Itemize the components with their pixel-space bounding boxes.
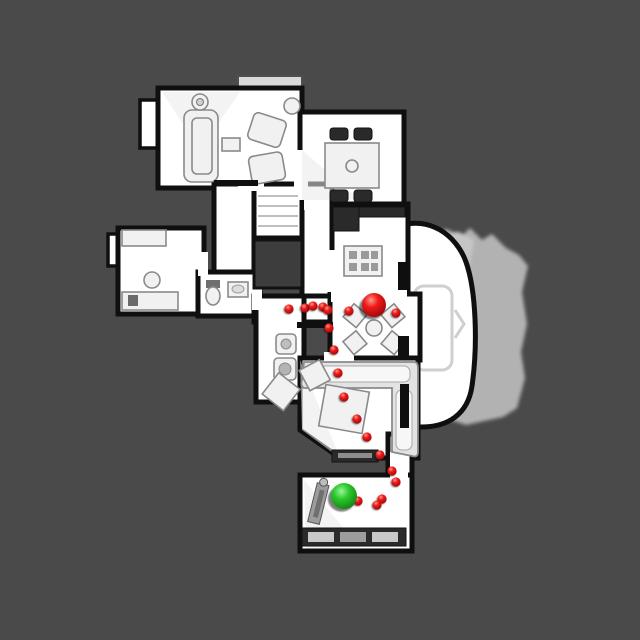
sofa-cushions (192, 118, 212, 174)
garage-door-jamb-1 (398, 262, 409, 290)
red-waypoint-dot (308, 301, 317, 310)
garage-door-jamb-3 (400, 384, 409, 428)
red-waypoint-dot (344, 306, 353, 315)
cabinet-panel-1 (308, 532, 334, 542)
red-waypoint-dot (333, 368, 342, 377)
red-waypoint-dot (372, 500, 381, 509)
dining-chair-2 (354, 128, 372, 140)
washer-door (281, 339, 291, 349)
red-waypoint-dot (352, 414, 361, 423)
cabinet-panel-2 (340, 532, 366, 542)
red-waypoint-dot (324, 323, 333, 332)
kitchen-island (344, 246, 382, 276)
red-waypoint-dot (329, 345, 338, 354)
desk-monitor (128, 295, 138, 306)
red-waypoint-dot (387, 466, 396, 475)
tv-console-panel (338, 453, 372, 458)
kitchen-opening (326, 250, 336, 292)
office-shelf (122, 230, 166, 246)
large-red-sphere-marker (362, 293, 386, 317)
dining-chair-3 (330, 190, 348, 202)
dining-chair-1 (330, 128, 348, 140)
dining-chair-4 (354, 190, 372, 202)
red-waypoint-dot (391, 477, 400, 486)
floor-plan-canvas (0, 0, 640, 640)
armchair-2 (248, 151, 286, 184)
office-door-opening (198, 252, 208, 276)
hall-top-wall (214, 180, 258, 186)
dryer-door (279, 363, 291, 375)
red-waypoint-dot (391, 308, 400, 317)
red-waypoint-dot (362, 432, 371, 441)
red-waypoint-dot (284, 304, 293, 313)
dining-hall-opening (304, 200, 328, 210)
cabinet-panel-3 (372, 532, 398, 542)
floor-lamp-2 (284, 98, 300, 114)
green-sphere-marker (331, 483, 357, 509)
lamp-shade (197, 99, 204, 106)
garage-door-jamb-2 (398, 336, 409, 360)
table-centerpiece (346, 160, 358, 172)
map-viewport[interactable] (0, 0, 640, 640)
toilet (206, 287, 220, 305)
nook-table (366, 320, 382, 336)
bathroom-opening (252, 288, 262, 310)
red-waypoint-dot (323, 305, 332, 314)
kitchen-counter-top (359, 207, 405, 217)
kitchen-counter-corner (333, 207, 359, 231)
dark-closet-block (254, 240, 302, 288)
family-coffee-table (319, 384, 370, 433)
red-waypoint-dot (339, 392, 348, 401)
office-chair (144, 272, 160, 288)
coffee-table-small (222, 138, 240, 151)
sink-basin (232, 285, 244, 293)
red-waypoint-dot (375, 450, 384, 459)
